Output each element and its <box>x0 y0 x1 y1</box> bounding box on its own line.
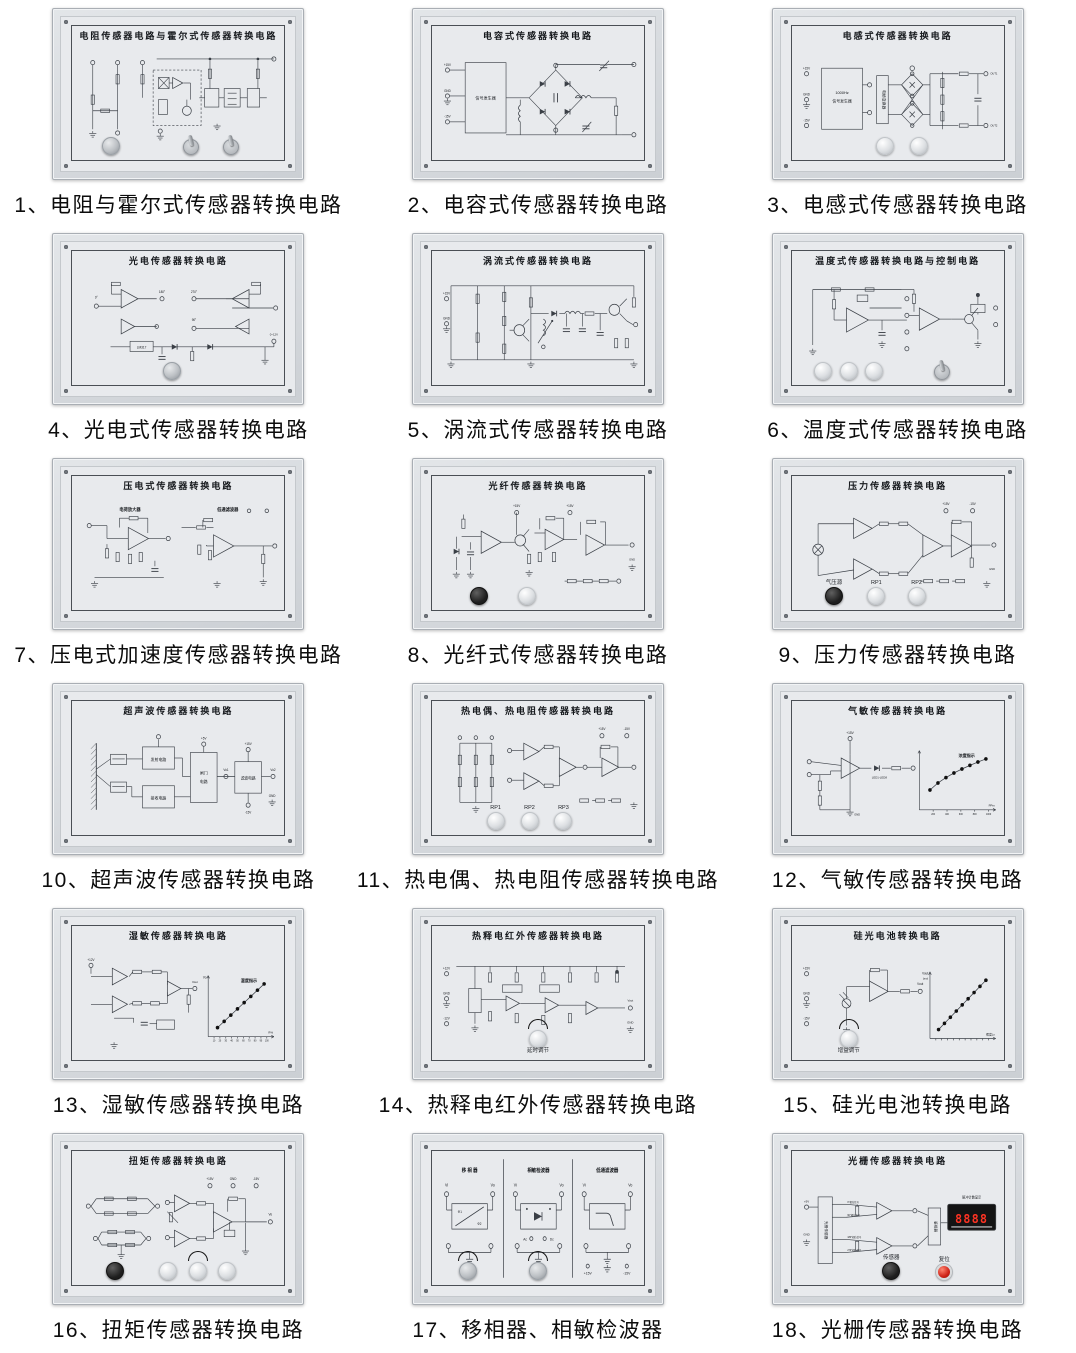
svg-text:20: 20 <box>219 1041 222 1043</box>
svg-text:GND: GND <box>803 1233 809 1237</box>
svg-text:200: 200 <box>931 814 936 816</box>
screw-icon <box>648 1145 652 1149</box>
screw-icon <box>784 389 788 393</box>
svg-text:60: 60 <box>242 1041 245 1043</box>
svg-text:低通滤波器: 低通滤波器 <box>595 1167 618 1175</box>
svg-text:+15V: +15V <box>207 1177 215 1181</box>
panel-inner-frame: 超声波传感器转换电路发射电路接收电路闸门电路滤波电路+5V+15VVo1Vo2-… <box>71 700 285 836</box>
svg-text:滤波电路: 滤波电路 <box>241 775 256 780</box>
panel-plate: 光电传感器转换电路0°180°270°90°LM3170~12V <box>60 241 296 397</box>
svg-text:+15V: +15V <box>245 742 253 746</box>
svg-text:Vi: Vi <box>445 1182 448 1187</box>
screw-icon <box>288 470 292 474</box>
screw-icon <box>1008 839 1012 843</box>
svg-text:GND: GND <box>443 317 450 321</box>
svg-text:70: 70 <box>248 1041 251 1043</box>
panel-inner-frame: 扭矩传感器转换电路+15VGND-15VVo <box>71 1150 285 1286</box>
panel-plate: 硅光电池转换电路+15VGND-15VVoutVout(mv)照度Lx增益调节 <box>780 916 1016 1072</box>
panel-plate: 压力传感器转换电路+15V-15VGND气压源RP1RP2 <box>780 466 1016 622</box>
schematic-drawing: +15V-15VGND <box>795 496 1001 607</box>
svg-text:PPm: PPm <box>988 804 995 808</box>
svg-text:GND: GND <box>629 558 635 562</box>
panel-title: 温度式传感器转换电路与控制电路 <box>792 254 1004 267</box>
svg-text:+5V: +5V <box>804 1199 809 1203</box>
svg-text:400: 400 <box>945 814 950 816</box>
svg-text:-15V: -15V <box>803 118 810 122</box>
screw-icon <box>424 245 428 249</box>
screw-icon <box>648 245 652 249</box>
svg-text:LED1-LED8: LED1-LED8 <box>871 775 886 779</box>
circuit-panel-15: 硅光电池转换电路+15VGND-15VVoutVout(mv)照度Lx增益调节 <box>772 908 1024 1080</box>
panel-title: 涡流式传感器转换电路 <box>432 254 644 267</box>
svg-text:+15V: +15V <box>803 67 811 71</box>
svg-text:GND: GND <box>269 794 276 798</box>
circuit-panel-8: 光纤传感器转换电路+15V+15VGND <box>412 458 664 630</box>
svg-text:Vo: Vo <box>491 1182 495 1187</box>
circuit-panel-12: 气敏传感器转换电路+15VLED1-LED8GND浓度指示20040060080… <box>772 683 1024 855</box>
screw-icon <box>288 920 292 924</box>
svg-text:GND: GND <box>803 92 810 96</box>
screw-icon <box>1008 164 1012 168</box>
svg-text:+12V: +12V <box>88 958 96 962</box>
screw-icon <box>784 920 788 924</box>
panel-caption: 6、温度式传感器转换电路 <box>767 414 1028 444</box>
screw-icon <box>784 695 788 699</box>
screw-icon <box>784 1289 788 1293</box>
svg-text:10: 10 <box>213 1041 216 1043</box>
panel-inner-frame: 热电偶、热电阻传感器转换电路+15V-15VRP1RP2RP3 <box>431 700 645 836</box>
panel-cell-9: 压力传感器转换电路+15V-15VGND气压源RP1RP29、压力传感器转换电路 <box>719 458 1076 683</box>
panel-plate: 热释电红外传感器转换电路+12VGND-12VVoutGND延时调节 <box>420 916 656 1072</box>
svg-text:+15V: +15V <box>942 502 950 506</box>
svg-text:R%: R% <box>269 1030 274 1034</box>
panel-caption: 3、电感式传感器转换电路 <box>767 189 1028 219</box>
screw-icon <box>64 1145 68 1149</box>
svg-text:+15V: +15V <box>513 504 521 508</box>
screw-icon <box>64 245 68 249</box>
svg-text:80: 80 <box>254 1041 257 1043</box>
panel-caption: 12、气敏传感器转换电路 <box>772 864 1023 894</box>
svg-text:GND: GND <box>854 812 860 816</box>
panel-inner-frame: 湿敏传感器转换电路+12VVout湿度指示Vo10203040506070809… <box>71 925 285 1061</box>
screw-icon <box>1008 470 1012 474</box>
svg-text:LM317: LM317 <box>137 346 147 350</box>
screw-icon <box>288 164 292 168</box>
svg-text:电路: 电路 <box>200 779 208 784</box>
svg-text:Vout: Vout <box>192 980 198 984</box>
panel-plate: 涡流式传感器转换电路+15VGND <box>420 241 656 397</box>
panel-plate: 湿敏传感器转换电路+12VVout湿度指示Vo10203040506070809… <box>60 916 296 1072</box>
screw-icon <box>64 614 68 618</box>
panel-grid: 电阻传感器电路与霍尔式传感器转换电路1、电阻与霍尔式传感器转换电路电容式传感器转… <box>0 0 1076 1353</box>
panel-cell-4: 光电传感器转换电路0°180°270°90°LM3170~12V4、光电式传感器… <box>0 233 357 458</box>
panel-cell-3: 电感式传感器转换电路1000Hz信号发生器+15VGND-15V电桥变换器OUT… <box>719 8 1076 233</box>
screw-icon <box>288 20 292 24</box>
screw-icon <box>648 695 652 699</box>
screw-icon <box>648 164 652 168</box>
screw-icon <box>648 920 652 924</box>
svg-text:GND: GND <box>989 567 995 571</box>
svg-text:8888: 8888 <box>955 1212 988 1226</box>
screw-icon <box>648 20 652 24</box>
screw-icon <box>288 1064 292 1068</box>
svg-text:0°相位信号: 0°相位信号 <box>847 1200 859 1204</box>
screw-icon <box>1008 614 1012 618</box>
svg-text:Vo: Vo <box>559 1182 563 1187</box>
svg-text:照度Lx: 照度Lx <box>986 1031 995 1036</box>
svg-text:移 相 器: 移 相 器 <box>462 1167 478 1175</box>
svg-text:+15V: +15V <box>443 292 451 296</box>
svg-text:GND: GND <box>230 1177 237 1181</box>
panel-plate: 光栅传感器转换电路光栅传感器+5VGND0°相位信号90°相位信号180°相位信… <box>780 1141 1016 1297</box>
screw-icon <box>424 1064 428 1068</box>
panel-title: 电感式传感器转换电路 <box>792 29 1004 42</box>
svg-text:OUT2: OUT2 <box>990 123 998 127</box>
svg-text:光栅传感器: 光栅传感器 <box>824 1221 829 1240</box>
panel-inner-frame: 光电传感器转换电路0°180°270°90°LM3170~12V <box>71 250 285 386</box>
svg-text:GND: GND <box>803 992 810 996</box>
panel-title: 扭矩传感器转换电路 <box>72 1154 284 1167</box>
schematic-drawing: +12VGND-12VVoutGND <box>435 946 641 1057</box>
svg-text:-15V: -15V <box>444 115 451 119</box>
screw-icon <box>784 614 788 618</box>
panel-title: 光纤传感器转换电路 <box>432 479 644 492</box>
screw-icon <box>1008 1064 1012 1068</box>
svg-text:GND: GND <box>444 89 451 93</box>
panel-caption: 7、压电式加速度传感器转换电路 <box>14 639 342 669</box>
svg-text:90°: 90° <box>192 318 197 322</box>
circuit-panel-14: 热释电红外传感器转换电路+12VGND-12VVoutGND延时调节 <box>412 908 664 1080</box>
svg-text:电荷放大器: 电荷放大器 <box>120 506 142 513</box>
circuit-panel-17: 移 相 器ViVoΦ1Φ2相敏检波器ViVoAcDc低通滤波器ViVo+15V-… <box>412 1133 664 1305</box>
panel-plate: 压电式传感器转换电路电荷放大器低通滤波器 <box>60 466 296 622</box>
svg-text:-15V: -15V <box>623 1271 631 1275</box>
screw-icon <box>1008 20 1012 24</box>
panel-cell-7: 压电式传感器转换电路电荷放大器低通滤波器7、压电式加速度传感器转换电路 <box>0 458 357 683</box>
screw-icon <box>288 389 292 393</box>
screw-icon <box>784 1064 788 1068</box>
panel-inner-frame: 硅光电池转换电路+15VGND-15VVoutVout(mv)照度Lx增益调节 <box>791 925 1005 1061</box>
svg-text:GND: GND <box>627 1021 633 1025</box>
panel-plate: 光纤传感器转换电路+15V+15VGND <box>420 466 656 622</box>
screw-icon <box>648 839 652 843</box>
screw-icon <box>288 245 292 249</box>
panel-cell-13: 湿敏传感器转换电路+12VVout湿度指示Vo10203040506070809… <box>0 908 357 1133</box>
screw-icon <box>648 614 652 618</box>
svg-text:+15V: +15V <box>803 967 811 971</box>
svg-text:OUT1: OUT1 <box>990 72 998 76</box>
svg-text:+15V: +15V <box>444 63 452 67</box>
panel-title: 超声波传感器转换电路 <box>72 704 284 717</box>
svg-text:(mv): (mv) <box>922 976 927 980</box>
panel-title: 压电式传感器转换电路 <box>72 479 284 492</box>
panel-caption: 14、热释电红外传感器转换电路 <box>379 1089 698 1119</box>
panel-cell-1: 电阻传感器电路与霍尔式传感器转换电路1、电阻与霍尔式传感器转换电路 <box>0 8 357 233</box>
svg-text:Vo: Vo <box>203 975 207 979</box>
svg-text:Vo1: Vo1 <box>224 768 229 772</box>
svg-text:GND: GND <box>443 992 450 996</box>
panel-cell-15: 硅光电池转换电路+15VGND-15VVoutVout(mv)照度Lx增益调节1… <box>719 908 1076 1133</box>
panel-caption: 5、涡流式传感器转换电路 <box>408 414 669 444</box>
screw-icon <box>424 839 428 843</box>
screw-icon <box>1008 1289 1012 1293</box>
catalog-page: 电阻传感器电路与霍尔式传感器转换电路1、电阻与霍尔式传感器转换电路电容式传感器转… <box>0 0 1076 1353</box>
svg-text:+12V: +12V <box>443 967 451 971</box>
svg-text:50: 50 <box>237 1041 240 1043</box>
panel-title: 硅光电池转换电路 <box>792 929 1004 942</box>
screw-icon <box>1008 920 1012 924</box>
panel-cell-10: 超声波传感器转换电路发射电路接收电路闸门电路滤波电路+5V+15VVo1Vo2-… <box>0 683 357 908</box>
svg-text:180°: 180° <box>159 290 166 294</box>
panel-caption: 8、光纤式传感器转换电路 <box>408 639 669 669</box>
svg-text:800: 800 <box>972 814 977 816</box>
svg-text:+15V: +15V <box>598 727 606 731</box>
circuit-panel-11: 热电偶、热电阻传感器转换电路+15V-15VRP1RP2RP3 <box>412 683 664 855</box>
svg-text:1000: 1000 <box>986 814 992 816</box>
svg-text:+15V: +15V <box>584 1271 592 1275</box>
panel-title: 电阻传感器电路与霍尔式传感器转换电路 <box>72 29 284 42</box>
schematic-drawing: +15V+15VGND <box>435 496 641 607</box>
panel-cell-14: 热释电红外传感器转换电路+12VGND-12VVoutGND延时调节14、热释电… <box>357 908 719 1133</box>
svg-text:相敏检波器: 相敏检波器 <box>527 1167 549 1175</box>
svg-text:180°相位信号: 180°相位信号 <box>847 1235 862 1239</box>
circuit-panel-13: 湿敏传感器转换电路+12VVout湿度指示Vo10203040506070809… <box>52 908 304 1080</box>
panel-plate: 电感式传感器转换电路1000Hz信号发生器+15VGND-15V电桥变换器OUT… <box>780 16 1016 172</box>
circuit-panel-4: 光电传感器转换电路0°180°270°90°LM3170~12V <box>52 233 304 405</box>
panel-title: 电容式传感器转换电路 <box>432 29 644 42</box>
svg-text:-15V: -15V <box>253 1177 260 1181</box>
panel-cell-17: 移 相 器ViVoΦ1Φ2相敏检波器ViVoAcDc低通滤波器ViVo+15V-… <box>357 1133 719 1353</box>
panel-plate: 热电偶、热电阻传感器转换电路+15V-15VRP1RP2RP3 <box>420 691 656 847</box>
panel-inner-frame: 温度式传感器转换电路与控制电路 <box>791 250 1005 386</box>
panel-plate: 气敏传感器转换电路+15VLED1-LED8GND浓度指示20040060080… <box>780 691 1016 847</box>
screw-icon <box>288 1289 292 1293</box>
schematic-drawing: +15VGND-15VVoutVout(mv)照度Lx <box>795 946 1001 1057</box>
screw-icon <box>648 389 652 393</box>
panel-plate: 电容式传感器转换电路信号发生器+15VGND-15V <box>420 16 656 172</box>
circuit-panel-1: 电阻传感器电路与霍尔式传感器转换电路 <box>52 8 304 180</box>
svg-text:Φ1: Φ1 <box>458 1210 462 1214</box>
svg-text:Φ2: Φ2 <box>477 1222 481 1226</box>
schematic-drawing <box>795 271 1001 382</box>
svg-text:270°: 270° <box>191 290 198 294</box>
panel-inner-frame: 移 相 器ViVoΦ1Φ2相敏检波器ViVoAcDc低通滤波器ViVo+15V-… <box>431 1150 645 1286</box>
svg-text:+15V: +15V <box>566 504 574 508</box>
svg-text:Vout: Vout <box>628 998 634 1002</box>
screw-icon <box>424 1145 428 1149</box>
panel-inner-frame: 气敏传感器转换电路+15VLED1-LED8GND浓度指示20040060080… <box>791 700 1005 836</box>
panel-title: 光电传感器转换电路 <box>72 254 284 267</box>
svg-text:+5V: +5V <box>201 736 207 740</box>
svg-text:电桥变换器: 电桥变换器 <box>881 90 886 110</box>
svg-text:浓度指示: 浓度指示 <box>958 752 974 758</box>
schematic-drawing: 移 相 器ViVoΦ1Φ2相敏检波器ViVoAcDc低通滤波器ViVo+15V-… <box>435 1155 641 1282</box>
screw-icon <box>1008 695 1012 699</box>
svg-text:脉冲计数显示: 脉冲计数显示 <box>962 1195 982 1200</box>
panel-inner-frame: 压力传感器转换电路+15V-15VGND气压源RP1RP2 <box>791 475 1005 611</box>
schematic-drawing: 电荷放大器低通滤波器 <box>75 496 281 607</box>
svg-text:接收电路: 接收电路 <box>151 796 167 801</box>
panel-cell-6: 温度式传感器转换电路与控制电路6、温度式传感器转换电路 <box>719 233 1076 458</box>
circuit-panel-6: 温度式传感器转换电路与控制电路 <box>772 233 1024 405</box>
panel-caption: 9、压力传感器转换电路 <box>778 639 1016 669</box>
screw-icon <box>648 1289 652 1293</box>
circuit-panel-9: 压力传感器转换电路+15V-15VGND气压源RP1RP2 <box>772 458 1024 630</box>
panel-inner-frame: 电感式传感器转换电路1000Hz信号发生器+15VGND-15V电桥变换器OUT… <box>791 25 1005 161</box>
svg-text:-15V: -15V <box>245 810 252 814</box>
panel-inner-frame: 压电式传感器转换电路电荷放大器低通滤波器 <box>71 475 285 611</box>
panel-caption: 15、硅光电池转换电路 <box>783 1089 1012 1119</box>
screw-icon <box>64 470 68 474</box>
screw-icon <box>1008 245 1012 249</box>
screw-icon <box>64 695 68 699</box>
panel-title: 光栅传感器转换电路 <box>792 1154 1004 1167</box>
panel-cell-11: 热电偶、热电阻传感器转换电路+15V-15VRP1RP2RP311、热电偶、热电… <box>357 683 719 908</box>
panel-cell-18: 光栅传感器转换电路光栅传感器+5VGND0°相位信号90°相位信号180°相位信… <box>719 1133 1076 1353</box>
screw-icon <box>64 20 68 24</box>
svg-text:-15V: -15V <box>624 727 631 731</box>
screw-icon <box>424 164 428 168</box>
panel-caption: 18、光栅传感器转换电路 <box>772 1314 1023 1344</box>
panel-cell-5: 涡流式传感器转换电路+15VGND5、涡流式传感器转换电路 <box>357 233 719 458</box>
screw-icon <box>424 695 428 699</box>
panel-plate: 温度式传感器转换电路与控制电路 <box>780 241 1016 397</box>
panel-caption: 11、热电偶、热电阻传感器转换电路 <box>357 864 719 894</box>
schematic-drawing: 信号发生器+15VGND-15V <box>435 46 641 157</box>
panel-caption: 1、电阻与霍尔式传感器转换电路 <box>14 189 342 219</box>
panel-plate: 移 相 器ViVoΦ1Φ2相敏检波器ViVoAcDc低通滤波器ViVo+15V-… <box>420 1141 656 1297</box>
svg-text:90: 90 <box>260 1041 263 1043</box>
circuit-panel-3: 电感式传感器转换电路1000Hz信号发生器+15VGND-15V电桥变换器OUT… <box>772 8 1024 180</box>
panel-title: 湿敏传感器转换电路 <box>72 929 284 942</box>
screw-icon <box>288 695 292 699</box>
schematic-drawing: 发射电路接收电路闸门电路滤波电路+5V+15VVo1Vo2-15VGND <box>75 721 281 832</box>
panel-inner-frame: 热释电红外传感器转换电路+12VGND-12VVoutGND延时调节 <box>431 925 645 1061</box>
panel-title: 压力传感器转换电路 <box>792 479 1004 492</box>
svg-text:30: 30 <box>225 1041 228 1043</box>
schematic-drawing: +15VGND-15VVo <box>75 1171 281 1282</box>
svg-text:600: 600 <box>959 814 964 816</box>
screw-icon <box>288 839 292 843</box>
svg-text:-15V: -15V <box>969 502 976 506</box>
svg-text:信号发生器: 信号发生器 <box>832 98 851 103</box>
panel-cell-12: 气敏传感器转换电路+15VLED1-LED8GND浓度指示20040060080… <box>719 683 1076 908</box>
panel-plate: 扭矩传感器转换电路+15VGND-15VVo <box>60 1141 296 1297</box>
svg-text:Vout: Vout <box>917 982 923 986</box>
panel-cell-8: 光纤传感器转换电路+15V+15VGND8、光纤式传感器转换电路 <box>357 458 719 683</box>
schematic-drawing: 1000Hz信号发生器+15VGND-15V电桥变换器OUT1OUT2 <box>795 46 1001 157</box>
svg-text:Dc: Dc <box>550 1237 554 1241</box>
screw-icon <box>784 164 788 168</box>
schematic-drawing: +15V-15V <box>435 721 641 832</box>
svg-text:0°: 0° <box>95 296 99 300</box>
svg-text:Vi: Vi <box>583 1182 586 1187</box>
circuit-panel-10: 超声波传感器转换电路发射电路接收电路闸门电路滤波电路+5V+15VVo1Vo2-… <box>52 683 304 855</box>
screw-icon <box>1008 1145 1012 1149</box>
circuit-panel-2: 电容式传感器转换电路信号发生器+15VGND-15V <box>412 8 664 180</box>
panel-caption: 17、移相器、相敏检波器 <box>412 1314 663 1344</box>
screw-icon <box>784 1145 788 1149</box>
panel-title: 热电偶、热电阻传感器转换电路 <box>432 704 644 717</box>
svg-text:鉴相器: 鉴相器 <box>933 1221 938 1232</box>
svg-text:1000Hz: 1000Hz <box>835 90 848 95</box>
svg-text:闸门: 闸门 <box>200 771 208 776</box>
screw-icon <box>64 164 68 168</box>
screw-icon <box>288 614 292 618</box>
schematic-drawing: +15VGND <box>435 271 641 382</box>
schematic-drawing <box>75 46 281 157</box>
panel-inner-frame: 光纤传感器转换电路+15V+15VGND <box>431 475 645 611</box>
panel-caption: 16、扭矩传感器转换电路 <box>53 1314 304 1344</box>
svg-text:100: 100 <box>265 1041 270 1043</box>
svg-text:Vi: Vi <box>514 1182 517 1187</box>
screw-icon <box>64 839 68 843</box>
svg-text:40: 40 <box>231 1041 234 1043</box>
schematic-drawing: +12VVout湿度指示Vo102030405060708090100R% <box>75 946 281 1057</box>
svg-text:湿度指示: 湿度指示 <box>241 977 257 983</box>
screw-icon <box>424 470 428 474</box>
screw-icon <box>648 1064 652 1068</box>
svg-text:Vo2: Vo2 <box>271 768 276 772</box>
svg-text:Vo: Vo <box>269 1212 273 1216</box>
panel-title: 热释电红外传感器转换电路 <box>432 929 644 942</box>
panel-inner-frame: 电阻传感器电路与霍尔式传感器转换电路 <box>71 25 285 161</box>
panel-inner-frame: 涡流式传感器转换电路+15VGND <box>431 250 645 386</box>
panel-cell-2: 电容式传感器转换电路信号发生器+15VGND-15V2、电容式传感器转换电路 <box>357 8 719 233</box>
panel-caption: 10、超声波传感器转换电路 <box>41 864 315 894</box>
panel-inner-frame: 电容式传感器转换电路信号发生器+15VGND-15V <box>431 25 645 161</box>
circuit-panel-7: 压电式传感器转换电路电荷放大器低通滤波器 <box>52 458 304 630</box>
screw-icon <box>424 1289 428 1293</box>
screw-icon <box>784 20 788 24</box>
screw-icon <box>64 1064 68 1068</box>
panel-caption: 4、光电式传感器转换电路 <box>48 414 309 444</box>
panel-inner-frame: 光栅传感器转换电路光栅传感器+5VGND0°相位信号90°相位信号180°相位信… <box>791 1150 1005 1286</box>
svg-text:Ac: Ac <box>523 1237 527 1241</box>
svg-text:低通滤波器: 低通滤波器 <box>217 506 240 513</box>
svg-text:Vo: Vo <box>628 1182 632 1187</box>
screw-icon <box>64 920 68 924</box>
circuit-panel-18: 光栅传感器转换电路光栅传感器+5VGND0°相位信号90°相位信号180°相位信… <box>772 1133 1024 1305</box>
svg-text:+15V: +15V <box>846 731 854 735</box>
screw-icon <box>288 1145 292 1149</box>
panel-caption: 13、湿敏传感器转换电路 <box>53 1089 304 1119</box>
screw-icon <box>784 470 788 474</box>
screw-icon <box>424 20 428 24</box>
svg-text:发射电路: 发射电路 <box>151 757 167 762</box>
svg-text:-15V: -15V <box>803 1016 810 1020</box>
schematic-drawing: +15VLED1-LED8GND浓度指示2004006008001000PPm <box>795 721 1001 832</box>
screw-icon <box>424 920 428 924</box>
svg-text:信号发生器: 信号发生器 <box>475 95 496 101</box>
screw-icon <box>784 839 788 843</box>
screw-icon <box>648 470 652 474</box>
panel-caption: 2、电容式传感器转换电路 <box>408 189 669 219</box>
svg-text:0~12V: 0~12V <box>270 333 278 337</box>
schematic-drawing: 光栅传感器+5VGND0°相位信号90°相位信号180°相位信号270°相位信号… <box>795 1171 1001 1282</box>
screw-icon <box>424 614 428 618</box>
panel-plate: 电阻传感器电路与霍尔式传感器转换电路 <box>60 16 296 172</box>
screw-icon <box>64 1289 68 1293</box>
screw-icon <box>64 389 68 393</box>
screw-icon <box>1008 389 1012 393</box>
schematic-drawing: 0°180°270°90°LM3170~12V <box>75 271 281 382</box>
panel-cell-16: 扭矩传感器转换电路+15VGND-15VVo16、扭矩传感器转换电路 <box>0 1133 357 1353</box>
circuit-panel-5: 涡流式传感器转换电路+15VGND <box>412 233 664 405</box>
svg-text:Vout: Vout <box>922 972 928 976</box>
screw-icon <box>784 245 788 249</box>
screw-icon <box>424 389 428 393</box>
